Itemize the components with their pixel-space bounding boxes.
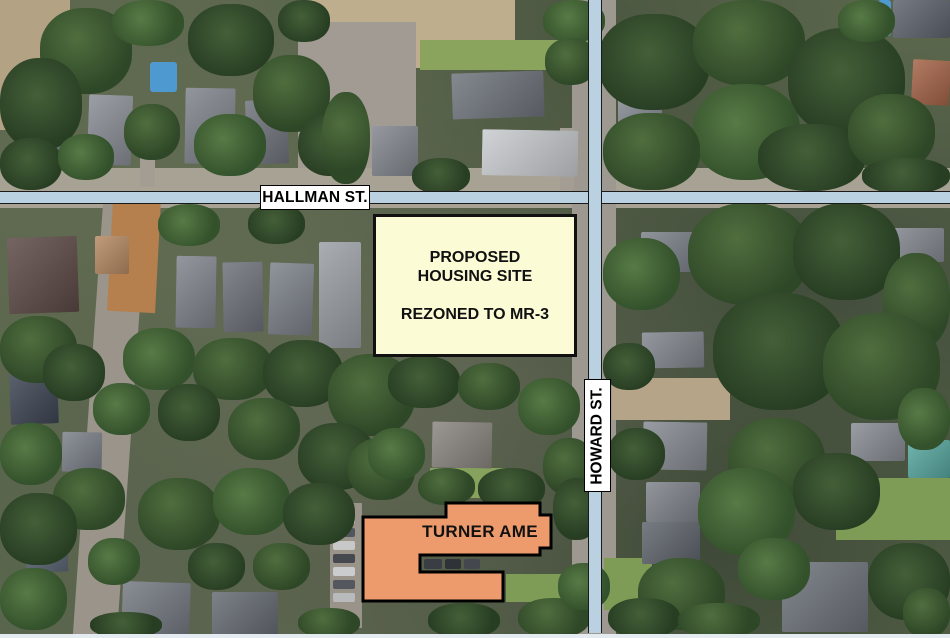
tree-canopy (138, 478, 220, 550)
tree-canopy (123, 328, 195, 390)
building-roof (212, 592, 278, 638)
tree-canopy (0, 568, 67, 630)
tree-canopy (608, 428, 665, 480)
tree-canopy (603, 113, 700, 190)
tree-canopy (124, 104, 180, 160)
howard-street-label-text: HOWARD ST. (589, 387, 607, 484)
tree-canopy (793, 453, 880, 530)
tree-canopy (213, 468, 290, 535)
turner-ame-label: TURNER AME (412, 522, 548, 542)
hallman-street-label: HALLMAN ST. (260, 185, 370, 210)
tree-canopy (158, 384, 220, 441)
proposed-site-line-1: PROPOSED (430, 248, 521, 267)
tree-canopy (158, 204, 220, 246)
tree-canopy (603, 238, 680, 310)
tree-canopy (368, 428, 425, 480)
tree-canopy (43, 344, 105, 401)
building-roof (482, 129, 579, 177)
tree-canopy (322, 92, 370, 184)
tree-canopy (412, 158, 470, 194)
parked-car (333, 567, 355, 576)
building-roof (893, 0, 950, 38)
building-roof (62, 432, 103, 473)
tree-canopy (0, 493, 77, 565)
tree-canopy (188, 4, 274, 76)
tree-canopy (278, 0, 330, 42)
parked-car (333, 593, 355, 602)
building-roof (268, 262, 314, 335)
tree-canopy (253, 543, 310, 590)
tree-canopy (688, 203, 810, 305)
tree-canopy (608, 598, 680, 638)
map-bottom-edge (0, 634, 950, 638)
tree-canopy (58, 134, 114, 180)
building-roof (319, 242, 361, 348)
tree-canopy (0, 138, 62, 190)
turner-ame-shape (360, 498, 560, 608)
tree-canopy (518, 378, 580, 435)
tree-canopy (428, 603, 500, 638)
building-roof (646, 482, 700, 522)
tree-canopy (388, 356, 460, 408)
hallman-street-label-text: HALLMAN ST. (262, 189, 368, 207)
tree-canopy (88, 538, 140, 585)
building-roof (7, 236, 80, 314)
tree-canopy (598, 14, 710, 110)
tree-canopy (93, 383, 150, 435)
tree-canopy (903, 588, 950, 638)
building-roof (851, 423, 905, 461)
building-roof (95, 236, 129, 274)
tree-canopy (898, 388, 950, 450)
tree-canopy (458, 363, 520, 410)
tree-canopy (862, 158, 950, 194)
parked-car (333, 554, 355, 563)
tree-canopy (228, 398, 300, 460)
tree-canopy (248, 204, 305, 244)
hallman-street-band (0, 191, 950, 204)
proposed-site-line-2: HOUSING SITE (418, 267, 533, 286)
howard-street-band (588, 0, 602, 633)
building-roof (372, 126, 418, 176)
building-roof (432, 421, 493, 468)
tree-canopy (838, 0, 895, 42)
aerial-map: HALLMAN ST. HOWARD ST. PROPOSED HOUSING … (0, 0, 950, 638)
tree-canopy (738, 538, 810, 600)
tree-canopy (188, 543, 245, 590)
parked-car (333, 580, 355, 589)
tree-canopy (112, 0, 184, 46)
proposed-site-line-3: REZONED TO MR-3 (401, 305, 549, 324)
swimming-pool (150, 62, 177, 92)
parked-car (333, 541, 355, 550)
tree-canopy (558, 563, 610, 610)
proposed-site-box: PROPOSED HOUSING SITE REZONED TO MR-3 (373, 214, 577, 357)
howard-street-label: HOWARD ST. (584, 379, 611, 492)
tree-canopy (283, 483, 355, 545)
building-roof (451, 70, 545, 119)
building-roof (222, 262, 263, 333)
tree-canopy (678, 603, 760, 638)
tree-canopy (0, 423, 62, 485)
building-roof (175, 256, 216, 329)
tree-canopy (194, 114, 266, 176)
